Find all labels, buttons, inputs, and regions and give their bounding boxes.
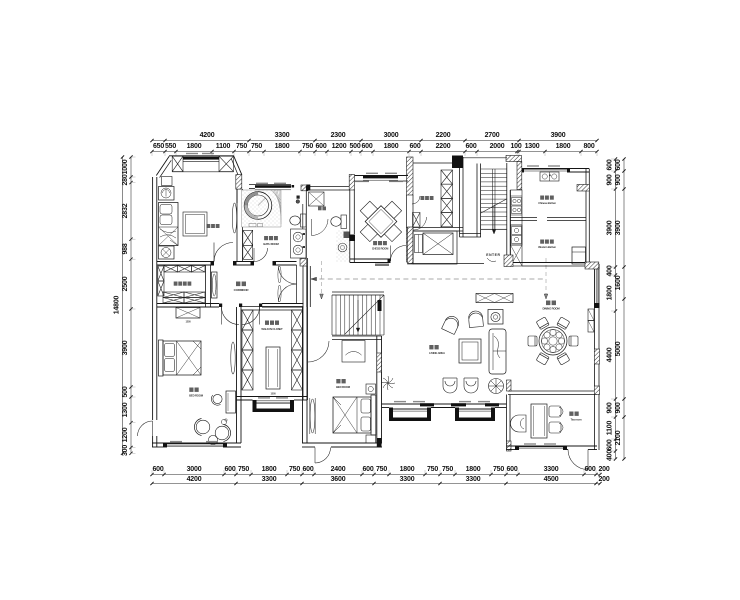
svg-text:2400: 2400 bbox=[331, 466, 346, 473]
svg-text:900: 900 bbox=[607, 402, 614, 413]
svg-text:3900: 3900 bbox=[122, 340, 129, 355]
svg-text:1200: 1200 bbox=[122, 427, 129, 442]
svg-text:Western kitchen: Western kitchen bbox=[538, 245, 556, 249]
svg-text:3300: 3300 bbox=[466, 476, 481, 483]
svg-text:750: 750 bbox=[442, 466, 453, 473]
svg-text:500: 500 bbox=[122, 386, 129, 397]
svg-text:2100: 2100 bbox=[615, 430, 622, 445]
svg-text:4200: 4200 bbox=[200, 132, 215, 139]
svg-text:3900: 3900 bbox=[551, 132, 566, 139]
svg-text:600: 600 bbox=[152, 466, 163, 473]
svg-text:400: 400 bbox=[607, 265, 614, 276]
svg-text:3300: 3300 bbox=[544, 466, 559, 473]
svg-text:600: 600 bbox=[362, 466, 373, 473]
svg-text:DINING ROOM: DINING ROOM bbox=[542, 307, 560, 311]
svg-text:3600: 3600 bbox=[331, 476, 346, 483]
svg-text:600: 600 bbox=[607, 439, 614, 450]
svg-text:1200: 1200 bbox=[332, 143, 347, 150]
svg-text:988: 988 bbox=[122, 243, 129, 254]
svg-text:1800: 1800 bbox=[262, 466, 277, 473]
svg-text:3900: 3900 bbox=[615, 220, 622, 235]
svg-text:3900: 3900 bbox=[607, 220, 614, 235]
svg-text:1800: 1800 bbox=[275, 143, 290, 150]
svg-text:900: 900 bbox=[615, 402, 622, 413]
svg-text:Chinese kitchen: Chinese kitchen bbox=[538, 201, 556, 205]
svg-text:3300: 3300 bbox=[262, 476, 277, 483]
svg-text:14800: 14800 bbox=[114, 295, 121, 314]
svg-text:3300: 3300 bbox=[400, 476, 415, 483]
svg-text:5000: 5000 bbox=[615, 341, 622, 356]
svg-text:750: 750 bbox=[238, 466, 249, 473]
svg-text:900: 900 bbox=[615, 174, 622, 185]
svg-text:WALK IN CLOSET: WALK IN CLOSET bbox=[261, 327, 283, 331]
svg-text:2200: 2200 bbox=[436, 143, 451, 150]
svg-text:1100: 1100 bbox=[607, 421, 614, 436]
svg-text:2832: 2832 bbox=[122, 203, 129, 218]
svg-text:2300: 2300 bbox=[331, 132, 346, 139]
svg-text:4500: 4500 bbox=[544, 476, 559, 483]
svg-text:1300: 1300 bbox=[525, 143, 540, 150]
svg-text:750: 750 bbox=[236, 143, 247, 150]
svg-text:650: 650 bbox=[153, 143, 164, 150]
svg-text:600: 600 bbox=[607, 159, 614, 170]
svg-text:1800: 1800 bbox=[607, 285, 614, 300]
svg-text:100: 100 bbox=[510, 143, 521, 150]
svg-text:750: 750 bbox=[493, 466, 504, 473]
svg-text:LIVING AREA: LIVING AREA bbox=[429, 351, 445, 355]
svg-text:550: 550 bbox=[165, 143, 176, 150]
svg-text:1500: 1500 bbox=[271, 392, 277, 396]
svg-text:1800: 1800 bbox=[466, 466, 481, 473]
svg-text:3000: 3000 bbox=[187, 466, 202, 473]
svg-text:750: 750 bbox=[302, 143, 313, 150]
svg-text:4200: 4200 bbox=[187, 476, 202, 483]
svg-text:750: 750 bbox=[289, 466, 300, 473]
svg-text:750: 750 bbox=[251, 143, 262, 150]
svg-text:1100: 1100 bbox=[216, 143, 231, 150]
svg-text:600: 600 bbox=[409, 143, 420, 150]
svg-text:1800: 1800 bbox=[400, 466, 415, 473]
svg-text:CORRIDOR: CORRIDOR bbox=[234, 288, 250, 292]
svg-text:750: 750 bbox=[427, 466, 438, 473]
svg-text:BATH ROOM: BATH ROOM bbox=[263, 242, 279, 246]
svg-text:200: 200 bbox=[598, 466, 609, 473]
svg-text:600: 600 bbox=[465, 143, 476, 150]
svg-text:300: 300 bbox=[122, 445, 129, 456]
svg-text:200: 200 bbox=[598, 476, 609, 483]
svg-text:Tea room: Tea room bbox=[571, 418, 582, 422]
svg-text:BED ROOM: BED ROOM bbox=[189, 394, 204, 398]
svg-text:400: 400 bbox=[607, 450, 614, 461]
svg-text:CHESS ROOM: CHESS ROOM bbox=[372, 247, 389, 251]
svg-text:3000: 3000 bbox=[384, 132, 399, 139]
svg-text:600: 600 bbox=[506, 466, 517, 473]
svg-text:600: 600 bbox=[615, 159, 622, 170]
svg-text:900: 900 bbox=[607, 174, 614, 185]
svg-text:1800: 1800 bbox=[187, 143, 202, 150]
svg-text:2000: 2000 bbox=[490, 143, 505, 150]
svg-text:1300: 1300 bbox=[122, 402, 129, 417]
svg-text:2700: 2700 bbox=[485, 132, 500, 139]
svg-text:4400: 4400 bbox=[607, 347, 614, 362]
svg-text:800: 800 bbox=[583, 143, 594, 150]
svg-text:1200: 1200 bbox=[186, 320, 192, 324]
svg-text:600: 600 bbox=[361, 143, 372, 150]
svg-text:3300: 3300 bbox=[275, 132, 290, 139]
svg-text:500: 500 bbox=[349, 143, 360, 150]
svg-text:1800: 1800 bbox=[556, 143, 571, 150]
svg-text:600: 600 bbox=[302, 466, 313, 473]
svg-text:280: 280 bbox=[122, 174, 129, 185]
svg-text:E N T E R: E N T E R bbox=[486, 253, 500, 257]
svg-text:1800: 1800 bbox=[384, 143, 399, 150]
svg-text:600: 600 bbox=[315, 143, 326, 150]
svg-text:750: 750 bbox=[376, 466, 387, 473]
svg-text:BED ROOM: BED ROOM bbox=[336, 385, 351, 389]
svg-text:2200: 2200 bbox=[436, 132, 451, 139]
svg-text:1600: 1600 bbox=[615, 275, 622, 290]
svg-text:1000: 1000 bbox=[122, 159, 129, 174]
svg-text:2500: 2500 bbox=[122, 276, 129, 291]
svg-text:600: 600 bbox=[224, 466, 235, 473]
